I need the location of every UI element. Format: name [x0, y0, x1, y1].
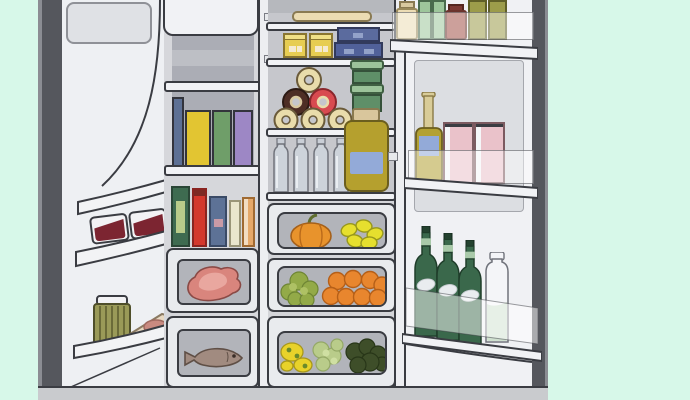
carton-purple — [233, 110, 253, 168]
container-lid — [350, 60, 384, 70]
bottle-red — [192, 188, 207, 247]
fish — [179, 331, 251, 377]
crisper-drawer-window — [277, 331, 387, 375]
yellow-box — [309, 33, 333, 58]
top-air-panel — [163, 0, 259, 36]
container-lid — [350, 84, 384, 94]
blue-box-label — [353, 33, 363, 38]
serving-tray — [292, 11, 372, 22]
leafy-greens — [346, 339, 387, 373]
yellow-box-label — [323, 46, 328, 52]
fish-drawer-window — [177, 329, 251, 377]
left-compartment — [164, 0, 264, 390]
center-compartment — [268, 0, 396, 390]
bottle-blue — [209, 196, 227, 247]
food-container-stack — [348, 60, 386, 114]
shelf — [164, 165, 263, 176]
blue-box-stack — [334, 27, 383, 58]
illustration-root — [0, 0, 690, 400]
container-body — [352, 70, 382, 84]
water-bottle — [274, 138, 288, 192]
door-shelf-rail — [392, 12, 534, 40]
broccoli — [281, 272, 318, 307]
right-door — [406, 0, 548, 400]
shelf — [164, 81, 263, 92]
meat-drawer — [166, 248, 259, 313]
water-bottle — [314, 138, 328, 192]
produce-drawer-window — [277, 212, 387, 249]
large-jar-label — [350, 152, 383, 174]
yellow-box-label — [297, 46, 302, 52]
water-bottle — [294, 138, 308, 192]
door-rail — [76, 231, 166, 266]
bottle-cream — [229, 200, 241, 247]
back-wall-highlight — [172, 50, 254, 66]
oranges — [323, 271, 388, 307]
yellow-peppers — [281, 343, 312, 372]
lemons — [339, 219, 384, 249]
raw-meat — [179, 261, 251, 305]
large-jar — [344, 120, 389, 192]
bottle-blue-label — [214, 219, 223, 227]
yellow-box-label — [315, 46, 322, 52]
carton-green — [212, 110, 232, 168]
yellow-box — [283, 33, 307, 58]
yellow-box-lid — [311, 35, 331, 40]
carton-yellow — [185, 110, 211, 168]
fish-drawer — [166, 316, 259, 388]
blue-box-label — [364, 49, 374, 54]
sauce-box-green — [171, 186, 190, 247]
bagel-plain — [297, 68, 321, 92]
bottle-red-cap — [194, 190, 205, 196]
carton-orange — [242, 197, 255, 247]
door-shelf-board — [390, 38, 538, 62]
door-rail — [78, 180, 166, 214]
water-bottle-row — [271, 138, 353, 194]
lettuce — [313, 339, 343, 371]
crisper-drawer — [267, 316, 396, 388]
carton-blue — [172, 97, 184, 168]
right-door-bottom-curve — [406, 334, 532, 392]
produce-drawer — [267, 258, 396, 312]
blue-box-label — [344, 49, 354, 54]
shelf-peg — [388, 152, 398, 161]
meat-drawer-window — [177, 259, 251, 305]
yellow-box-label — [289, 46, 296, 52]
fridge-base — [38, 386, 548, 400]
produce-drawer-window — [277, 266, 387, 307]
shelf — [266, 192, 396, 201]
left-door-structure — [38, 0, 170, 400]
door-rail — [74, 325, 166, 358]
produce-drawer — [267, 203, 396, 255]
door-pocket-curve — [102, 0, 160, 186]
blue-box — [334, 42, 383, 58]
blue-box — [337, 27, 380, 42]
yellow-box-lid — [285, 35, 305, 40]
left-door — [0, 0, 170, 400]
door-shelf-board — [404, 176, 538, 200]
carton-orange-stripe — [244, 199, 248, 245]
pumpkin — [291, 215, 331, 249]
sauce-box-label — [176, 201, 185, 233]
